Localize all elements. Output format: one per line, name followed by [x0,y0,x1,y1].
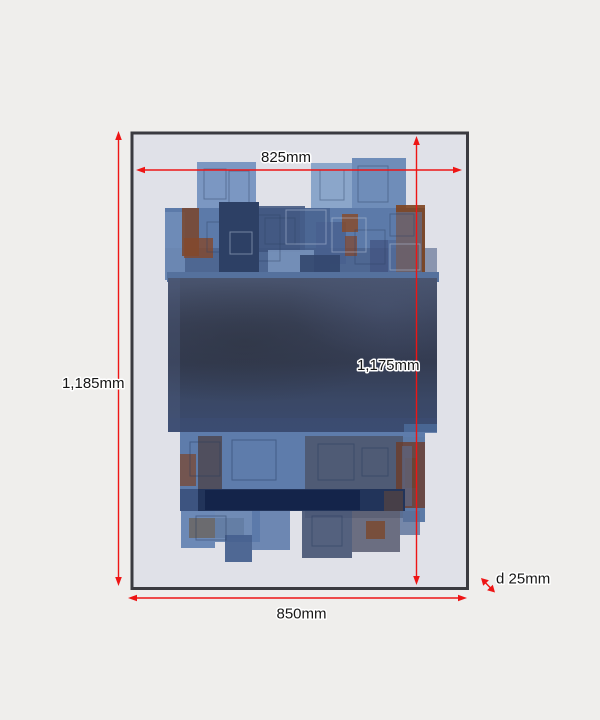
svg-text:1,175mm: 1,175mm [357,357,420,374]
svg-text:825mm: 825mm [261,149,311,166]
svg-text:850mm: 850mm [276,606,326,623]
svg-text:d 25mm: d 25mm [496,571,550,588]
svg-text:1,185mm: 1,185mm [62,375,125,392]
